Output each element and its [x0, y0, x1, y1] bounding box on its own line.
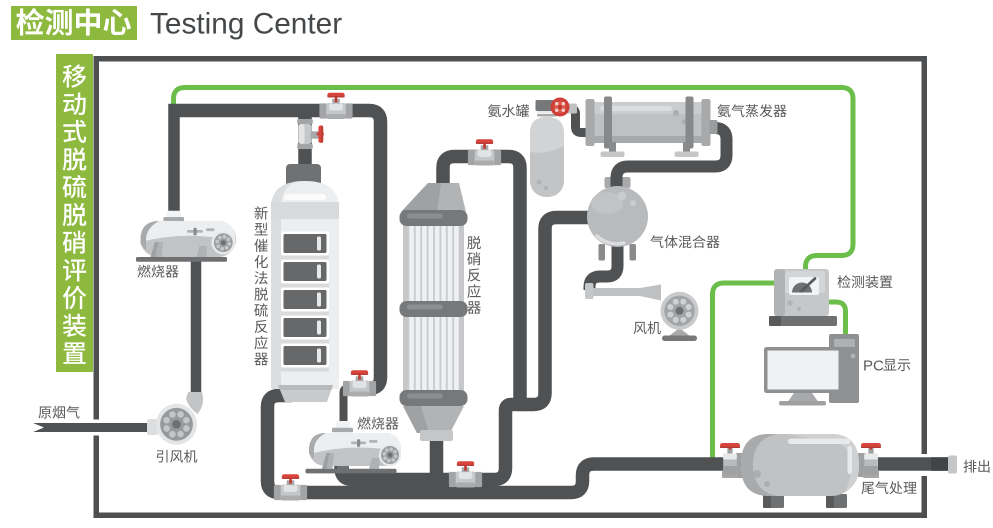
svg-text:PC: PC	[863, 358, 884, 375]
svg-text:Testing Center: Testing Center	[150, 8, 342, 41]
